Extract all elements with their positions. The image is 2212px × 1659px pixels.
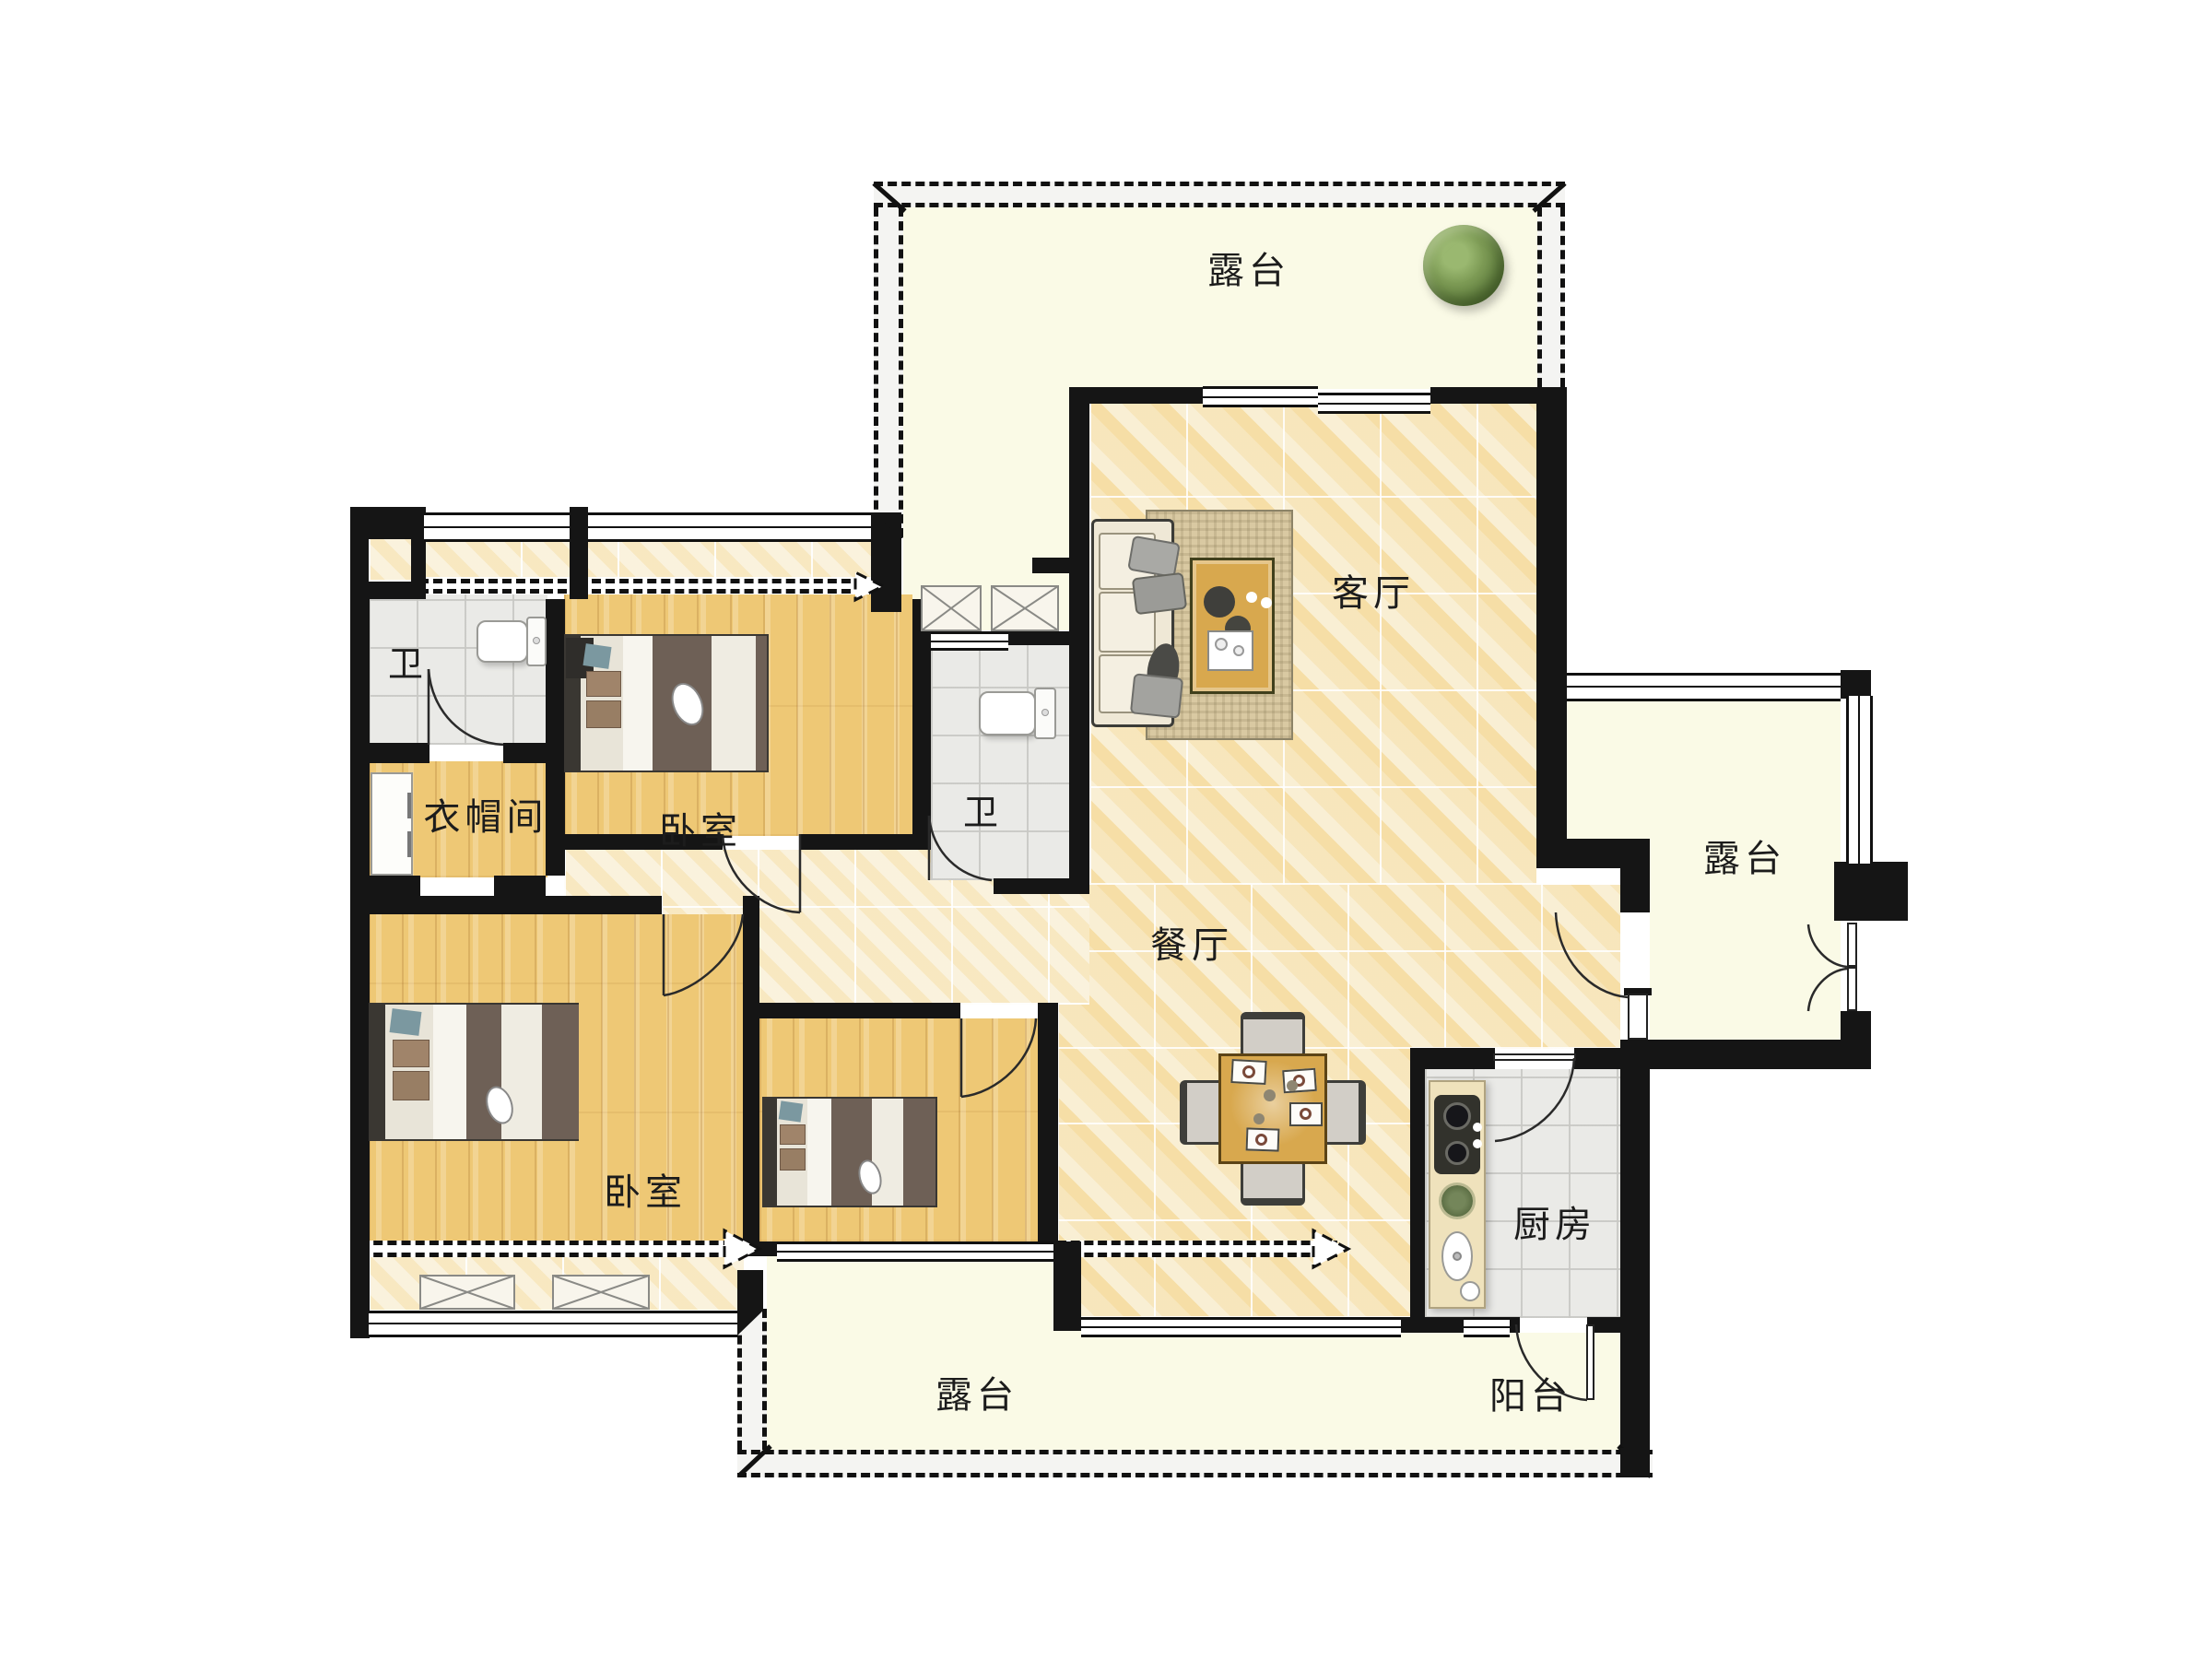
room-label-terrace-right: 露台: [1703, 829, 1786, 882]
door-swing-icon: [1495, 1058, 1574, 1141]
door-swing-icon: [1808, 924, 1847, 967]
door-swing-icon: [1556, 912, 1628, 997]
room-label-living: 客厅: [1332, 563, 1415, 617]
room-label-bedroom-top: 卧室: [659, 801, 742, 854]
floor-plan-canvas: 露台 客厅 露台 餐厅 卫 卫 衣帽间 卧室 卧室 厨房 阳台 露台: [0, 0, 2212, 1659]
ac-platform-icon: [420, 586, 1058, 1309]
room-label-dining: 餐厅: [1150, 915, 1233, 969]
room-label-kitchen: 厨房: [1513, 1194, 1596, 1248]
room-label-terrace-bottom: 露台: [935, 1365, 1018, 1418]
plan-linework: [0, 0, 2212, 1659]
room-label-bath-top: 卫: [388, 636, 423, 687]
room-label-bath-mid: 卫: [963, 784, 998, 835]
entry-arrow-icon: [724, 572, 1348, 1267]
room-label-terrace-top: 露台: [1207, 241, 1290, 294]
room-label-balcony: 阳台: [1489, 1366, 1572, 1419]
room-label-cloakroom: 衣帽间: [424, 787, 548, 841]
room-label-bedroom-main: 卧室: [604, 1162, 687, 1216]
